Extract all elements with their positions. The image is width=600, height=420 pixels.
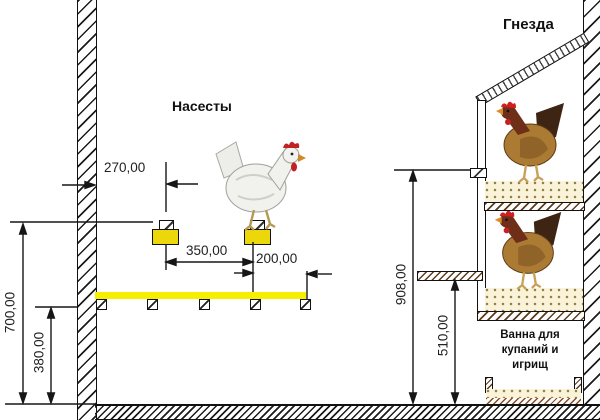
- platform-support: [300, 299, 311, 310]
- hen-illustration-top-nest: [492, 101, 568, 183]
- lower-nest-perch-board: [417, 271, 483, 281]
- hen-illustration-bottom-nest: [490, 210, 566, 290]
- platform-support: [96, 299, 107, 310]
- left-wall: [77, 0, 97, 420]
- bath-base: [486, 398, 581, 404]
- dim-700-label: 700,00: [3, 282, 18, 344]
- label-bath: Ванна для купаний и игрищ: [478, 328, 582, 373]
- right-wall: [583, 0, 600, 405]
- nest-bedding-top: [485, 181, 583, 202]
- dim-350-label: 350,00: [186, 243, 227, 258]
- nest-shelf-bottom: [477, 311, 585, 321]
- dim-700-lines: [20, 224, 27, 403]
- dim-380-label: 380,00: [32, 322, 47, 384]
- dim-510-label: 510,00: [436, 305, 451, 367]
- nest-roof: [475, 33, 589, 106]
- upper-nest-perch: [470, 168, 487, 178]
- dim-200-label: 200,00: [256, 251, 297, 266]
- roost-platform: [95, 292, 306, 299]
- coop-diagram: Насесты Гнезда Ванна для купаний и игрищ…: [0, 0, 600, 420]
- floor: [95, 404, 600, 420]
- platform-support: [199, 299, 210, 310]
- platform-support: [250, 299, 261, 310]
- label-roosts: Насесты: [172, 98, 232, 114]
- dim-270-label: 270,00: [104, 160, 145, 175]
- platform-support: [147, 299, 158, 310]
- nest-bedding-bottom: [485, 288, 583, 311]
- dim-510-lines: [452, 280, 459, 403]
- label-nests: Гнезда: [503, 16, 554, 33]
- perch-bracket-left: [152, 229, 179, 245]
- white-chicken-illustration: [212, 140, 306, 232]
- dim-908-label: 908,00: [394, 254, 409, 316]
